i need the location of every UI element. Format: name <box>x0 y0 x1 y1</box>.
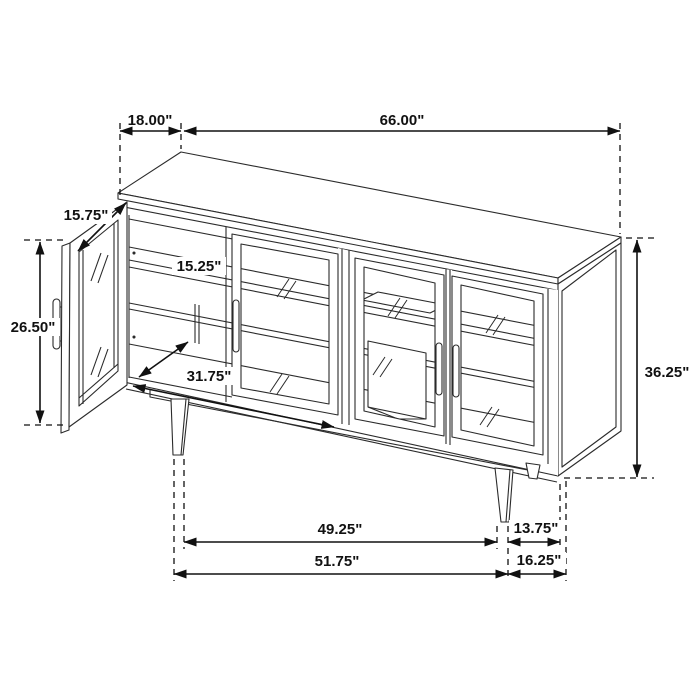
dimension-diagram: 18.00" 66.00" 15.75" 26.50" 15.25" 31.75… <box>0 0 700 700</box>
label-door-height: 26.50" <box>11 319 56 336</box>
label-door-width: 15.75" <box>64 207 109 224</box>
label-interior-width: 31.75" <box>187 368 232 385</box>
label-leg-span-outer: 51.75" <box>315 553 360 570</box>
label-shelf-depth: 15.25" <box>177 258 222 275</box>
handle-door4 <box>453 345 459 397</box>
label-leg-span-inner: 49.25" <box>318 521 363 538</box>
sideboard-diagram-svg: 18.00" 66.00" 15.75" 26.50" 15.25" 31.75… <box>0 0 700 700</box>
label-right-overhang: 16.25" <box>517 552 562 569</box>
handle-door3 <box>436 343 442 395</box>
interior-compartment-door3 <box>368 341 426 419</box>
label-overall-height: 36.25" <box>645 364 690 381</box>
handle-door2 <box>233 300 239 352</box>
label-depth-top: 18.00" <box>128 112 173 129</box>
label-width-top: 66.00" <box>380 112 425 129</box>
label-leg-offset-right: 13.75" <box>514 520 559 537</box>
